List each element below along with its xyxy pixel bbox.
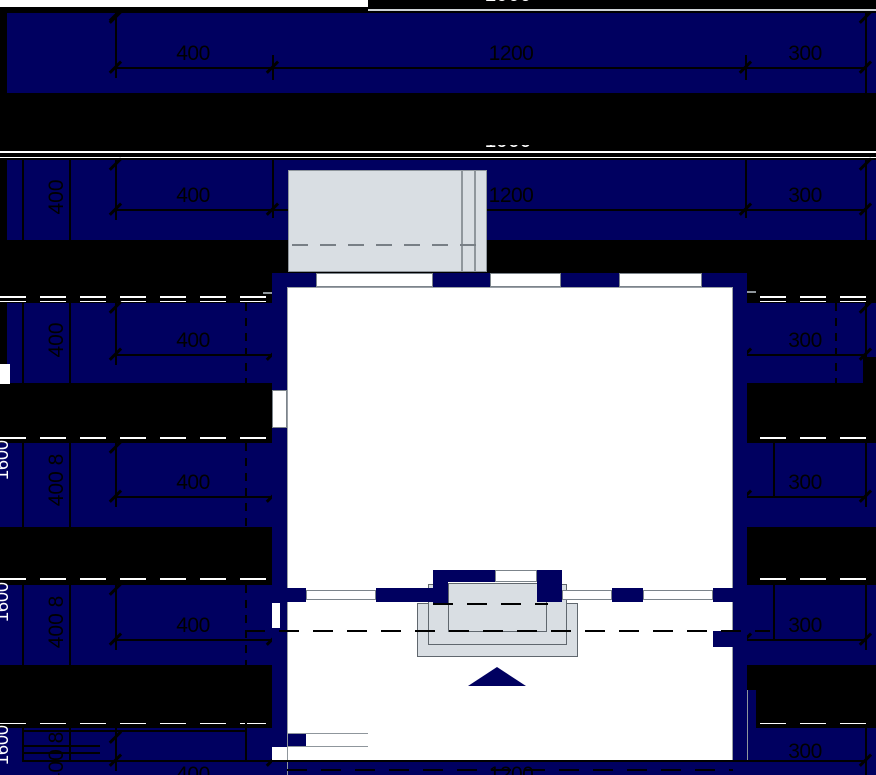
- porch-step-line-2: [474, 170, 476, 272]
- top-total-line: [368, 9, 876, 11]
- extension-line-115: [115, 160, 117, 220]
- extension-line-69: [69, 303, 71, 383]
- dim-label-400: 400: [133, 330, 253, 351]
- wall-right: [733, 273, 747, 762]
- dim-label-300: 300: [745, 472, 865, 493]
- wall-mid-seg-3: [612, 588, 643, 602]
- stub-left: [263, 292, 272, 294]
- extension-line-865: [865, 13, 867, 93]
- porch-step-line-1: [461, 170, 463, 272]
- dim-label-400: 400: [133, 472, 253, 493]
- extension-line-22: [22, 303, 24, 383]
- extension-line-865: [865, 728, 867, 775]
- wall-mid-seg-1: [287, 588, 306, 602]
- total-label-band2-clip: 1900: [448, 145, 568, 152]
- cad-drawing-canvas: 4001200300400120030040040012003004004001…: [0, 0, 876, 775]
- total-label-band2: 1900: [448, 145, 568, 151]
- porch-slab: [288, 170, 487, 272]
- dim-label-400: 400: [133, 43, 253, 64]
- band3-black-patch: [863, 357, 876, 383]
- wall-mid-right-stub: [713, 631, 733, 647]
- dim-label-300: 300: [745, 330, 865, 351]
- bottom-dashed-line: [287, 769, 733, 771]
- plan-bottom-line: [22, 760, 865, 762]
- window-left: [272, 390, 287, 428]
- entry-wall-right-block: [537, 570, 562, 602]
- vdim-label-400: 400: [47, 147, 67, 247]
- wall-left-bottom-stub: [272, 762, 287, 775]
- wall-left-corner-block: [272, 733, 306, 747]
- opening-mid-2: [562, 590, 612, 600]
- interior-edge-left: [287, 287, 288, 760]
- extension-line-22: [22, 160, 24, 240]
- dim-label-300: 300: [745, 185, 865, 206]
- section-dashed-line: [245, 630, 770, 632]
- window-top-1: [316, 273, 433, 287]
- wall-mid-seg-2: [376, 588, 433, 602]
- porch-dashed-line: [292, 244, 483, 246]
- window-top-2: [490, 273, 561, 287]
- opening-mid-3: [643, 590, 713, 600]
- door-left-bottom: [272, 747, 287, 760]
- window-top-3: [619, 273, 702, 287]
- dim-label-400: 400: [133, 185, 253, 206]
- stub-right: [747, 291, 756, 293]
- opening-mid-1: [306, 590, 376, 600]
- wall-right-bottom-stub: [733, 762, 756, 775]
- plan-interior: [287, 287, 733, 760]
- vdim-total-clipped: 1600: [0, 432, 11, 488]
- steps-dashed-line: [433, 603, 548, 605]
- extension-line-22: [22, 443, 24, 527]
- extension-line-69: [69, 443, 71, 527]
- dimension-line: [115, 209, 865, 211]
- dim-label-300: 300: [745, 741, 865, 762]
- extension-line-245: [245, 722, 247, 761]
- dim-label-400: 400: [133, 615, 253, 636]
- entry-door-opening: [495, 570, 537, 582]
- wall-top-seg-3: [561, 273, 619, 287]
- wall-left-notch: [272, 603, 280, 628]
- band-separator-line: [0, 157, 876, 159]
- entry-wall-top-bar: [433, 570, 495, 582]
- wall-left: [272, 273, 287, 733]
- bottom-left-line-2: [287, 746, 368, 747]
- vdim-label-400: 400 8: [47, 572, 67, 672]
- dim-label-300: 300: [745, 43, 865, 64]
- band-separator-line: [0, 151, 876, 153]
- dim-label-1200: 1200: [451, 43, 571, 64]
- interior-edge-top: [287, 287, 733, 288]
- left-edge-white-fragment: [0, 364, 10, 384]
- extension-line-69: [69, 160, 71, 240]
- wall-top-seg-2: [433, 273, 490, 287]
- entry-step-inner: [448, 583, 547, 632]
- vdim-label-400: 400 8: [47, 430, 67, 530]
- extension-line-69: [69, 585, 71, 665]
- dimension-line: [115, 67, 865, 69]
- vdim-label-400: 400: [47, 290, 67, 390]
- dim-label-400: 400: [133, 764, 253, 775]
- top-margin-strip: [0, 0, 368, 7]
- bottom-left-line-1: [287, 733, 368, 734]
- vdim-total-clipped: 1600: [0, 574, 11, 630]
- wall-mid-seg-4: [713, 588, 737, 602]
- vdim-total-clipped: 1600: [0, 717, 11, 773]
- vdim-label-400: 400 8: [47, 708, 67, 775]
- dim-label-300: 300: [745, 615, 865, 636]
- entry-arrow-icon: [468, 667, 526, 686]
- total-label-top-clipped: 1900: [448, 0, 568, 5]
- extension-line-865: [865, 160, 867, 240]
- extension-line-22: [22, 585, 24, 665]
